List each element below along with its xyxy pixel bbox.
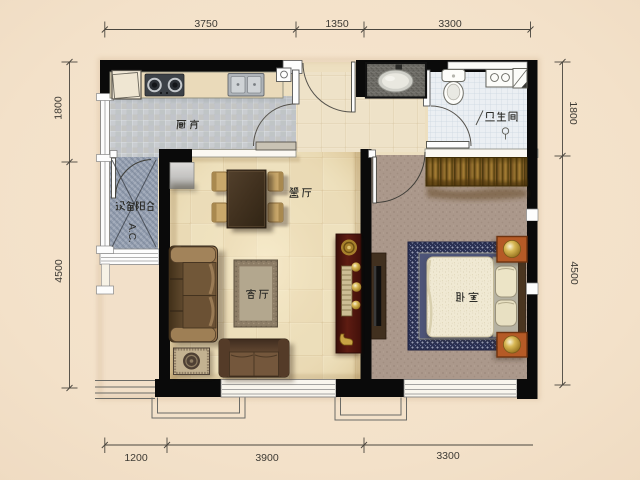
svg-text:1200: 1200: [124, 452, 148, 464]
svg-text:4500: 4500: [53, 259, 65, 283]
svg-text:3750: 3750: [194, 18, 218, 30]
svg-text:3300: 3300: [438, 18, 462, 30]
svg-text:3300: 3300: [436, 450, 460, 462]
svg-text:1800: 1800: [567, 101, 579, 125]
svg-text:1350: 1350: [325, 18, 349, 30]
svg-text:A.C.: A.C.: [126, 223, 137, 242]
svg-text:4500: 4500: [568, 261, 580, 285]
svg-text:1800: 1800: [53, 96, 65, 120]
svg-text:3900: 3900: [255, 452, 279, 464]
